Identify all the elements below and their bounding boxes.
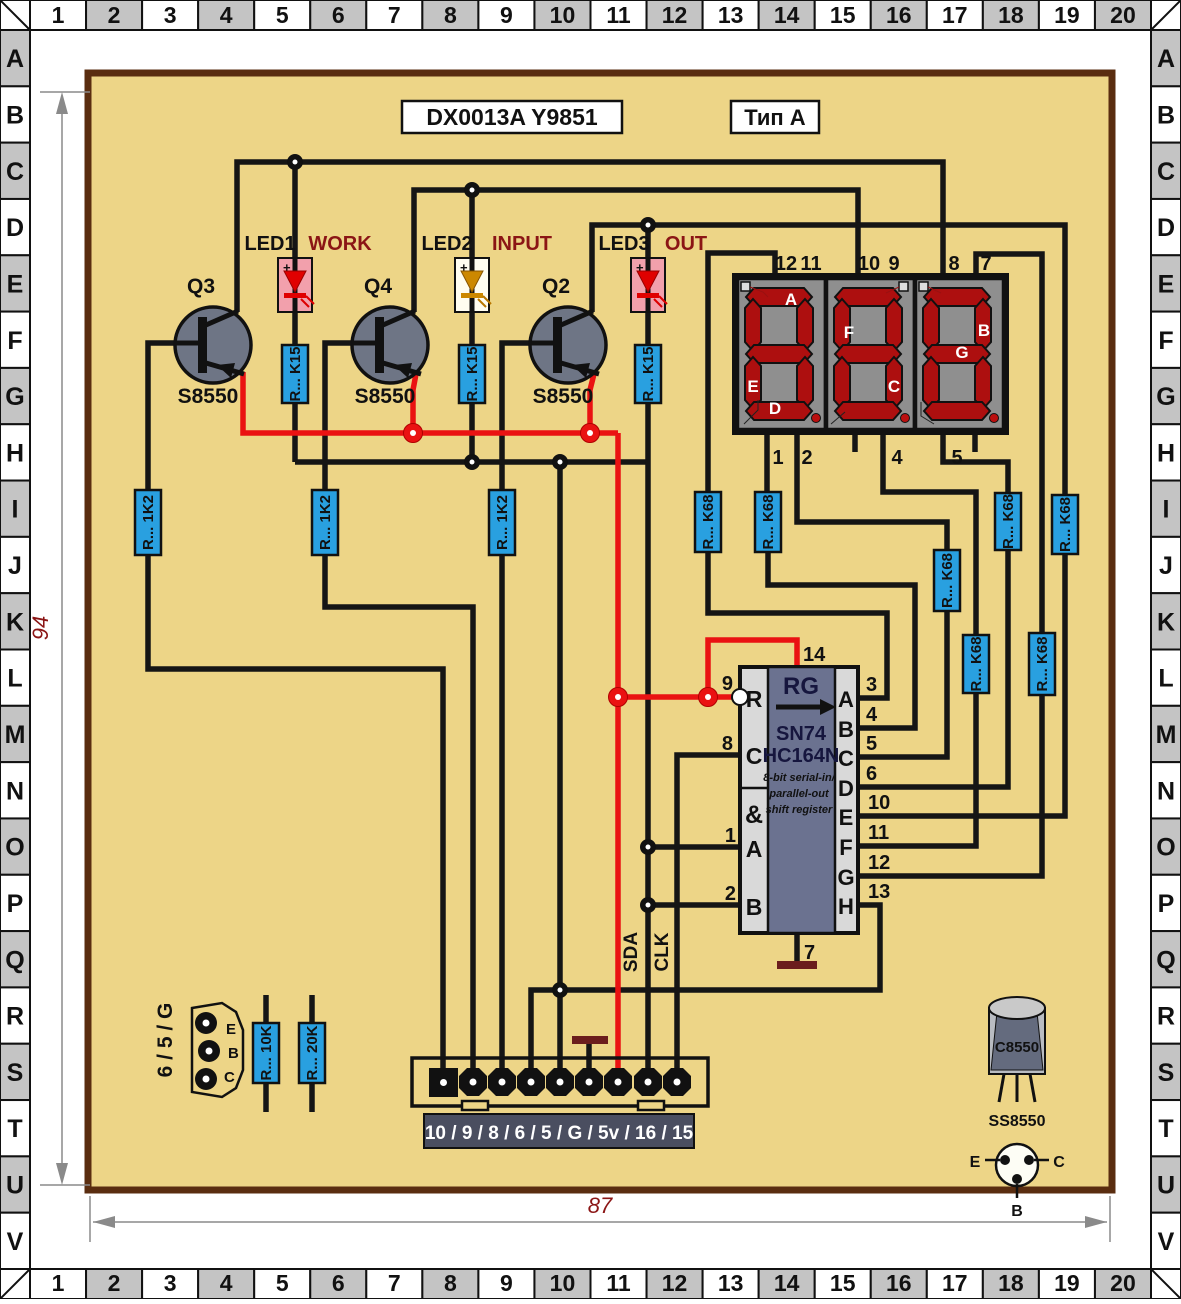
frame-row-label-V: V [1158,1228,1175,1256]
frame-col-label-6: 6 [332,2,345,28]
seg-letter-e: E [747,377,758,396]
display-pin-5: 5 [951,447,962,469]
resistor-k68: R... K68 [755,492,781,552]
frame-row-label-H: H [6,439,24,467]
seg-letter-a: A [785,290,797,309]
frame-row-label-N: N [6,777,24,805]
frame-row-label-S: S [1158,1059,1175,1087]
frame-row-label-D: D [6,214,24,242]
frame-row-label-I: I [12,496,19,524]
frame-col-label-12: 12 [662,1270,688,1296]
transistor-ref: Q3 [187,275,215,298]
frame-col-label-1: 1 [52,1270,65,1296]
frame-col-label-1: 1 [52,2,65,28]
frame-row-label-U: U [1157,1172,1175,1200]
transistor-ref: Q4 [364,275,392,298]
frame-row-label-C: C [6,158,24,186]
aux-pin-b: B [228,1045,239,1062]
schematic-page: 1122334455667788991010111112121313141415… [0,0,1181,1299]
connector-pads [429,1068,691,1097]
ic-desc-line3: shift register [766,804,833,816]
frame-row-label-B: B [6,101,24,129]
ic-desc-line1: 8-bit serial-in/ [763,772,836,784]
frame-col-label-4: 4 [220,1270,233,1296]
ic-pinnum-1: 1 [725,825,736,847]
connector-ground-bar [572,1036,608,1044]
ic-pinnum-5: 5 [866,733,877,755]
frame-row-label-B: B [1157,101,1175,129]
frame-row-label-E: E [1158,270,1175,298]
frame-row-label-G: G [1156,383,1175,411]
frame-col-label-15: 15 [830,1270,856,1296]
frame-row-label-O: O [5,834,24,862]
frame-row-label-L: L [1158,665,1173,693]
frame-col-label-18: 18 [998,1270,1024,1296]
frame-col-label-11: 11 [606,1270,631,1296]
frame-col-label-2: 2 [108,1270,121,1296]
display-pin-10: 10 [858,253,880,275]
display-pin-7: 7 [980,253,991,275]
resistor-r1k2: R... 1K2 [135,490,161,555]
frame-row-label-K: K [1157,608,1175,636]
frame-row-label-R: R [6,1003,24,1031]
frame-col-label-10: 10 [550,2,576,28]
resistor-r10k: R... 10K [253,1023,279,1083]
package-marking: C8550 [995,1039,1039,1056]
ic-pin-b-in: B [746,894,763,920]
resistor-k68: R... K68 [1052,495,1078,554]
frame-col-label-13: 13 [718,2,744,28]
frame-col-label-4: 4 [220,2,233,28]
ic-pinnum-8: 8 [722,733,733,755]
frame-col-label-20: 20 [1110,2,1136,28]
frame-row-label-A: A [1157,45,1175,73]
frame-col-label-19: 19 [1054,1270,1080,1296]
frame-row-label-J: J [8,552,22,580]
display-pin-9: 9 [888,253,899,275]
resistor-r20k: R... 20K [299,1023,325,1083]
ic-pinnum-11: 11 [868,822,889,844]
frame-row-label-F: F [1158,327,1173,355]
frame-col-label-11: 11 [606,2,631,28]
dim-width-label: 87 [588,1193,613,1218]
ic-pinnum-4: 4 [866,704,878,726]
frame-col-label-3: 3 [164,1270,177,1296]
ic-pinnum-2: 2 [725,883,736,905]
display-pin-11: 11 [800,253,821,275]
ic-pinnum-9: 9 [722,673,733,695]
led2-ref: LED2 [421,233,472,255]
resistor-label: R... K68 [1000,494,1017,549]
frame-row-label-I: I [1163,496,1170,524]
frame-row-label-F: F [7,327,22,355]
ic-pin-f-out: F [839,835,852,860]
frame-row-label-R: R [1157,1003,1175,1031]
resistor-label: R... 20K [304,1025,321,1080]
frame-col-label-15: 15 [830,2,856,28]
ic-pin-d-out: D [838,776,854,801]
ic-pinnum-3: 3 [866,674,877,696]
resistor-k68: R... K68 [1029,633,1055,695]
frame-row-label-T: T [7,1115,22,1143]
display-pin-12: 12 [775,253,797,275]
frame-row-label-T: T [1158,1115,1173,1143]
pinout-b: B [1011,1203,1023,1220]
frame-col-label-14: 14 [774,1270,800,1296]
pinout-e: E [970,1154,981,1171]
frame-row-label-Q: Q [5,946,24,974]
ic-pinnum-7: 7 [804,942,815,964]
display-pin-2: 2 [801,447,812,469]
resistor-label: R... K68 [939,553,956,608]
frame-col-label-16: 16 [886,1270,912,1296]
frame-row-label-M: M [1156,721,1177,749]
resistor-label: R... 1K2 [494,495,511,550]
type-label: Тип A [744,105,806,130]
ic-pin-c-out: C [838,746,854,771]
resistor-k15: R... K15 [282,345,308,403]
sda-label: SDA [621,932,642,972]
resistor-label: R... K68 [968,636,985,691]
frame-row-label-D: D [1157,214,1175,242]
resistor-label: R... 1K2 [140,495,157,550]
led3-function: OUT [665,233,707,255]
resistor-label: R... K68 [700,494,717,549]
display-pin-4: 4 [891,447,903,469]
ic-desc-line2: parallel-out [768,788,830,800]
frame-row-label-H: H [1157,439,1175,467]
resistor-label: R... K15 [640,346,657,401]
resistor-label: R... K15 [464,346,481,401]
pinout-c: C [1053,1154,1065,1171]
transistor-ref: Q2 [542,275,570,298]
frame-row-label-C: C [1157,158,1175,186]
seg-letter-c: C [888,377,900,396]
ic-pin-amp: & [745,801,763,829]
frame-col-label-13: 13 [718,1270,744,1296]
frame-col-label-16: 16 [886,2,912,28]
frame-col-label-8: 8 [444,2,457,28]
seg-letter-d: D [769,399,781,418]
frame-row-label-V: V [7,1228,24,1256]
schematic-svg: 1122334455667788991010111112121313141415… [0,0,1181,1299]
ic-pin-g-out: G [837,865,854,890]
frame-row-label-S: S [7,1059,24,1087]
frame-col-label-5: 5 [276,2,289,28]
aux-pin-e: E [226,1021,236,1038]
frame-col-label-9: 9 [500,2,513,28]
title-block: DX0013A Y9851 Тип A [402,101,819,133]
frame-row-label-E: E [7,270,24,298]
frame-col-label-9: 9 [500,1270,513,1296]
frame-col-label-2: 2 [108,2,121,28]
frame-col-label-7: 7 [388,1270,401,1296]
frame-row-label-N: N [1157,777,1175,805]
seg-letter-g: G [955,343,968,362]
display-pin-8: 8 [948,253,959,275]
connector-pin-labels: 10 / 9 / 8 / 6 / 5 / G / 5v / 16 / 15 [425,1123,694,1144]
led1-function: WORK [308,233,372,255]
ic-pin-a-out: A [838,687,854,712]
ic-part-line2: HC164N [763,745,840,767]
frame-row-label-Q: Q [1156,946,1175,974]
frame-col-label-19: 19 [1054,2,1080,28]
resistor-label: R... K68 [1057,497,1074,552]
resistor-label: R... K15 [287,346,304,401]
ic-pinnum-14: 14 [803,644,826,666]
frame-row-label-U: U [6,1172,24,1200]
frame-col-label-3: 3 [164,2,177,28]
ic-reg-symbol: RG [783,673,819,700]
transistor-part: S8550 [533,385,594,408]
frame-col-label-8: 8 [444,1270,457,1296]
resistor-r1k2: R... 1K2 [489,490,515,555]
clk-label: CLK [652,932,673,971]
led1-ref: LED1 [244,233,295,255]
ic-pin-e-out: E [839,805,854,830]
frame-row-label-M: M [5,721,26,749]
aux-pin-c: C [224,1069,235,1086]
resistor-k15: R... K15 [635,345,661,403]
resistor-k68: R... K68 [963,635,989,693]
frame-col-label-10: 10 [550,1270,576,1296]
resistor-label: R... K68 [1034,636,1051,691]
transistor-part: S8550 [178,385,239,408]
ic-pinnum-6: 6 [866,763,877,785]
frame-col-label-6: 6 [332,1270,345,1296]
ic-part-line1: SN74 [776,723,827,745]
frame-col-label-14: 14 [774,2,800,28]
frame-col-label-12: 12 [662,2,688,28]
frame-col-label-20: 20 [1110,1270,1136,1296]
frame-row-label-P: P [1158,890,1175,918]
frame-col-label-5: 5 [276,1270,289,1296]
dim-height-label: 94 [28,616,53,640]
seg-letter-b: B [978,321,990,340]
frame-row-label-O: O [1156,834,1175,862]
resistor-k68: R... K68 [995,493,1021,550]
frame-col-label-17: 17 [942,2,968,28]
package-part-name: SS8550 [989,1113,1046,1130]
ic-pinnum-10: 10 [868,792,890,814]
frame-col-label-17: 17 [942,1270,968,1296]
reset-pin-node [732,689,748,705]
resistor-k68: R... K68 [695,492,721,552]
ic-pin-a-in: A [746,836,763,862]
frame-col-label-7: 7 [388,2,401,28]
ic-pin-b-out: B [838,717,854,742]
led3-ref: LED3 [598,233,649,255]
led2-function: INPUT [492,233,552,255]
resistor-k15: R... K15 [459,345,485,403]
ic-pinnum-12: 12 [868,852,890,874]
frame-col-label-18: 18 [998,2,1024,28]
resistor-label: R... 10K [258,1025,275,1080]
frame-row-label-A: A [6,45,24,73]
frame-row-label-J: J [1159,552,1173,580]
ic-pin-c: C [746,743,763,769]
resistor-label: R... 1K2 [317,495,334,550]
display-pin-1: 1 [772,447,783,469]
frame-row-label-L: L [7,665,22,693]
ic-pinnum-13: 13 [868,881,890,903]
frame-row-label-G: G [5,383,24,411]
ic-ground-bar [777,961,817,969]
part-number-label: DX0013A Y9851 [426,104,598,130]
resistor-r1k2: R... 1K2 [312,490,338,555]
aux-connector-label: 6 / 5 / G [154,1003,177,1078]
frame-row-label-P: P [7,890,24,918]
seg-letter-f: F [844,323,854,342]
resistor-label: R... K68 [760,494,777,549]
frame-row-label-K: K [6,608,24,636]
resistor-k68: R... K68 [934,550,960,611]
transistor-part: S8550 [355,385,416,408]
ic-pin-h-out: H [838,894,854,919]
